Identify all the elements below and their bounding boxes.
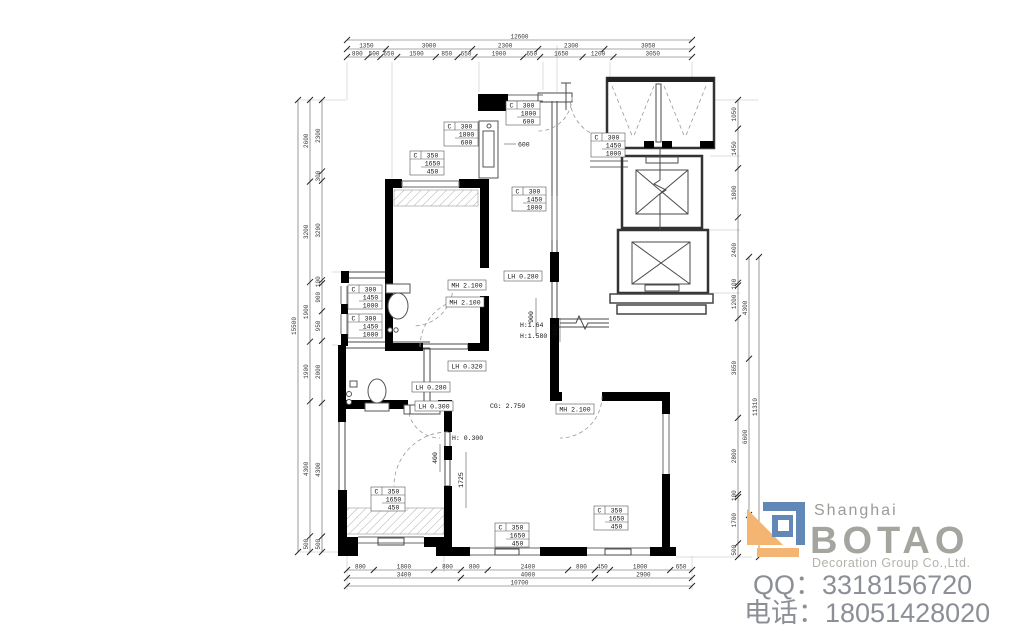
qq-line: QQ：3318156720 [753, 570, 972, 600]
small-dim: 900 [528, 311, 535, 323]
svg-text:300: 300 [315, 170, 322, 181]
svg-text:350: 350 [388, 488, 400, 495]
dim-right-overall: 11310 [752, 254, 762, 560]
svg-text:100: 100 [315, 276, 322, 287]
svg-text:600: 600 [523, 118, 535, 125]
level-label: LH 0.280 [504, 271, 542, 281]
svg-text:2300: 2300 [498, 43, 513, 50]
svg-text:600: 600 [461, 139, 473, 146]
svg-text:500: 500 [315, 538, 322, 549]
svg-text:MH 2.100: MH 2.100 [559, 406, 590, 413]
svg-text:1800: 1800 [397, 564, 412, 571]
height-label: H: 0.300 [452, 435, 483, 442]
svg-text:450: 450 [597, 564, 608, 571]
window-tag: C300 14501000 [348, 314, 382, 338]
svg-text:1800: 1800 [521, 111, 537, 118]
svg-text:1000: 1000 [606, 150, 622, 157]
svg-text:2800: 2800 [731, 448, 738, 463]
height-label: H:1.580 [520, 333, 547, 340]
svg-text:450: 450 [611, 523, 623, 530]
svg-text:900: 900 [315, 291, 322, 302]
svg-text:LH 0.320: LH 0.320 [451, 363, 482, 370]
svg-text:3000: 3000 [422, 43, 437, 50]
svg-text:3650: 3650 [731, 360, 738, 375]
toilet-bowl [368, 379, 386, 403]
svg-text:1900: 1900 [492, 51, 507, 58]
svg-text:C: C [598, 507, 602, 514]
svg-text:3400: 3400 [397, 572, 412, 579]
dim-top-row2: 13503000230023003050 [344, 43, 695, 53]
svg-text:3200: 3200 [303, 224, 310, 239]
window-tag: C350 1650450 [594, 506, 628, 530]
floor-drain [347, 400, 352, 405]
floor-drain [388, 328, 392, 332]
svg-text:1450: 1450 [731, 141, 738, 156]
svg-text:11310: 11310 [752, 398, 759, 416]
dim-left-col3: 2300300320010090095020004300500 [315, 97, 325, 555]
svg-text:500: 500 [731, 544, 738, 555]
floor-plan-page: 12600 13503000230023003050 8005006501500… [0, 0, 1011, 628]
svg-text:1800: 1800 [459, 132, 475, 139]
svg-text:1350: 1350 [359, 43, 374, 50]
svg-text:500: 500 [369, 51, 380, 58]
level-label: LH 0.280 [412, 382, 450, 392]
svg-text:C: C [499, 524, 503, 531]
logo-subtitle: Decoration Group Co.,Ltd. [812, 556, 970, 570]
floor-drain [394, 328, 398, 332]
svg-text:2400: 2400 [521, 564, 536, 571]
svg-text:4000: 4000 [521, 572, 536, 579]
svg-text:300: 300 [461, 123, 473, 130]
toilet-tank [365, 403, 389, 411]
svg-text:1450: 1450 [363, 324, 379, 331]
floor-drain [347, 392, 352, 397]
svg-text:10700: 10700 [510, 580, 528, 587]
kitchen-sink [483, 131, 494, 167]
svg-text:800: 800 [469, 564, 480, 571]
small-dim: 800 [552, 324, 559, 336]
dim-left-col2: 26003200190019004300500 [303, 97, 313, 555]
svg-text:1000: 1000 [527, 204, 543, 211]
svg-text:350: 350 [611, 507, 623, 514]
svg-text:2300: 2300 [315, 128, 322, 143]
svg-text:1650: 1650 [609, 516, 625, 523]
dim-bottom-overall: 10700 [344, 580, 695, 590]
svg-text:950: 950 [315, 320, 322, 331]
dim-top-row3: 80050065015008506501900650165012003050 [344, 51, 695, 61]
svg-text:1700: 1700 [731, 513, 738, 528]
svg-text:500: 500 [303, 538, 310, 549]
level-label: MH 2.100 [448, 280, 486, 290]
svg-text:4300: 4300 [742, 300, 749, 315]
svg-text:2400: 2400 [731, 242, 738, 257]
svg-text:800: 800 [352, 51, 363, 58]
svg-text:MH 2.100: MH 2.100 [451, 282, 482, 289]
svg-text:C: C [352, 315, 356, 322]
svg-text:1650: 1650 [425, 161, 441, 168]
svg-text:350: 350 [427, 152, 439, 159]
small-dim: 600 [518, 142, 530, 149]
svg-text:3050: 3050 [646, 51, 661, 58]
svg-text:4300: 4300 [315, 462, 322, 477]
svg-text:3200: 3200 [315, 223, 322, 238]
svg-text:C: C [414, 152, 418, 159]
svg-text:100: 100 [731, 278, 738, 289]
svg-text:650: 650 [383, 51, 394, 58]
svg-text:C: C [510, 102, 514, 109]
ceiling-height-label: CG: 2.750 [490, 403, 525, 410]
svg-text:2000: 2000 [315, 364, 322, 379]
svg-text:1450: 1450 [527, 197, 543, 204]
svg-text:C: C [352, 286, 356, 293]
svg-text:1000: 1000 [363, 331, 379, 338]
svg-text:C: C [375, 488, 379, 495]
svg-text:300: 300 [529, 188, 541, 195]
svg-text:800: 800 [576, 564, 587, 571]
dim-left-overall: 15500 [291, 97, 301, 555]
window-tag: C350 1650450 [495, 523, 529, 547]
level-label: LH 0.320 [448, 361, 486, 371]
svg-text:1650: 1650 [554, 51, 569, 58]
svg-text:1050: 1050 [731, 107, 738, 122]
svg-text:650: 650 [676, 564, 687, 571]
svg-text:1900: 1900 [303, 364, 310, 379]
svg-text:100: 100 [731, 490, 738, 501]
svg-text:300: 300 [523, 102, 535, 109]
small-dim: 1725 [458, 472, 465, 488]
svg-text:450: 450 [427, 168, 439, 175]
toilet-tank [386, 284, 410, 293]
svg-text:1650: 1650 [386, 497, 402, 504]
toilet-bowl [388, 293, 408, 319]
svg-text:350: 350 [512, 524, 524, 531]
floor-plan-canvas: 12600 13503000230023003050 8005006501500… [0, 0, 1011, 628]
svg-text:15500: 15500 [291, 317, 298, 335]
svg-text:3050: 3050 [641, 43, 656, 50]
svg-text:450: 450 [512, 540, 524, 547]
svg-text:1500: 1500 [409, 51, 424, 58]
svg-text:C: C [516, 188, 520, 195]
svg-text:1450: 1450 [363, 295, 379, 302]
dim-right-col2: 43006600 [742, 254, 752, 518]
svg-text:C: C [595, 134, 599, 141]
logo-region: Shanghai [814, 502, 898, 519]
svg-text:MH 2.100: MH 2.100 [449, 299, 480, 306]
svg-text:2600: 2600 [303, 133, 310, 148]
level-label: LH 0.300 [415, 401, 453, 411]
svg-text:800: 800 [355, 564, 366, 571]
svg-text:2900: 2900 [636, 572, 651, 579]
window-tag: C350 1650450 [410, 151, 444, 175]
svg-text:1800: 1800 [731, 185, 738, 200]
svg-text:300: 300 [365, 315, 377, 322]
svg-text:1800: 1800 [633, 564, 648, 571]
logo: Shanghai BOTAO Decoration Group Co.,Ltd. [747, 502, 970, 570]
svg-text:C: C [448, 123, 452, 130]
svg-text:6600: 6600 [742, 429, 749, 444]
svg-text:1650: 1650 [510, 533, 526, 540]
svg-text:LH 0.280: LH 0.280 [507, 273, 538, 280]
svg-text:300: 300 [365, 286, 377, 293]
window-tag: C300 14501000 [348, 285, 382, 309]
svg-text:1000: 1000 [363, 302, 379, 309]
svg-text:1900: 1900 [303, 304, 310, 319]
window-tag: C350 1650450 [371, 487, 405, 511]
svg-text:450: 450 [388, 504, 400, 511]
svg-text:1450: 1450 [606, 143, 622, 150]
svg-text:1200: 1200 [731, 294, 738, 309]
svg-text:LH 0.300: LH 0.300 [418, 403, 449, 410]
svg-text:2300: 2300 [564, 43, 579, 50]
window-tag: C300 14501000 [512, 187, 546, 211]
svg-text:4300: 4300 [303, 461, 310, 476]
contact-info: QQ：3318156720 电话：18051428020 [744, 570, 990, 628]
window-tag: C300 1800600 [506, 101, 540, 125]
phone-line: 电话：18051428020 [744, 598, 990, 628]
svg-text:650: 650 [526, 51, 537, 58]
svg-text:650: 650 [461, 51, 472, 58]
level-label: MH 2.100 [556, 404, 594, 414]
dim-right-col1: 1050145018002400100120036502800100170050… [731, 97, 741, 560]
elevator-block [560, 77, 714, 329]
window-tag: C300 14501000 [591, 133, 625, 157]
small-dim: 400 [432, 452, 439, 464]
svg-text:1200: 1200 [591, 51, 606, 58]
svg-text:850: 850 [441, 51, 452, 58]
window-tag: C300 1800600 [444, 122, 478, 146]
level-label: MH 2.100 [446, 297, 484, 307]
botao-logo-icon [747, 502, 805, 557]
svg-text:300: 300 [608, 134, 620, 141]
svg-text:800: 800 [442, 564, 453, 571]
svg-text:12600: 12600 [510, 34, 528, 41]
svg-text:LH 0.280: LH 0.280 [415, 384, 446, 391]
